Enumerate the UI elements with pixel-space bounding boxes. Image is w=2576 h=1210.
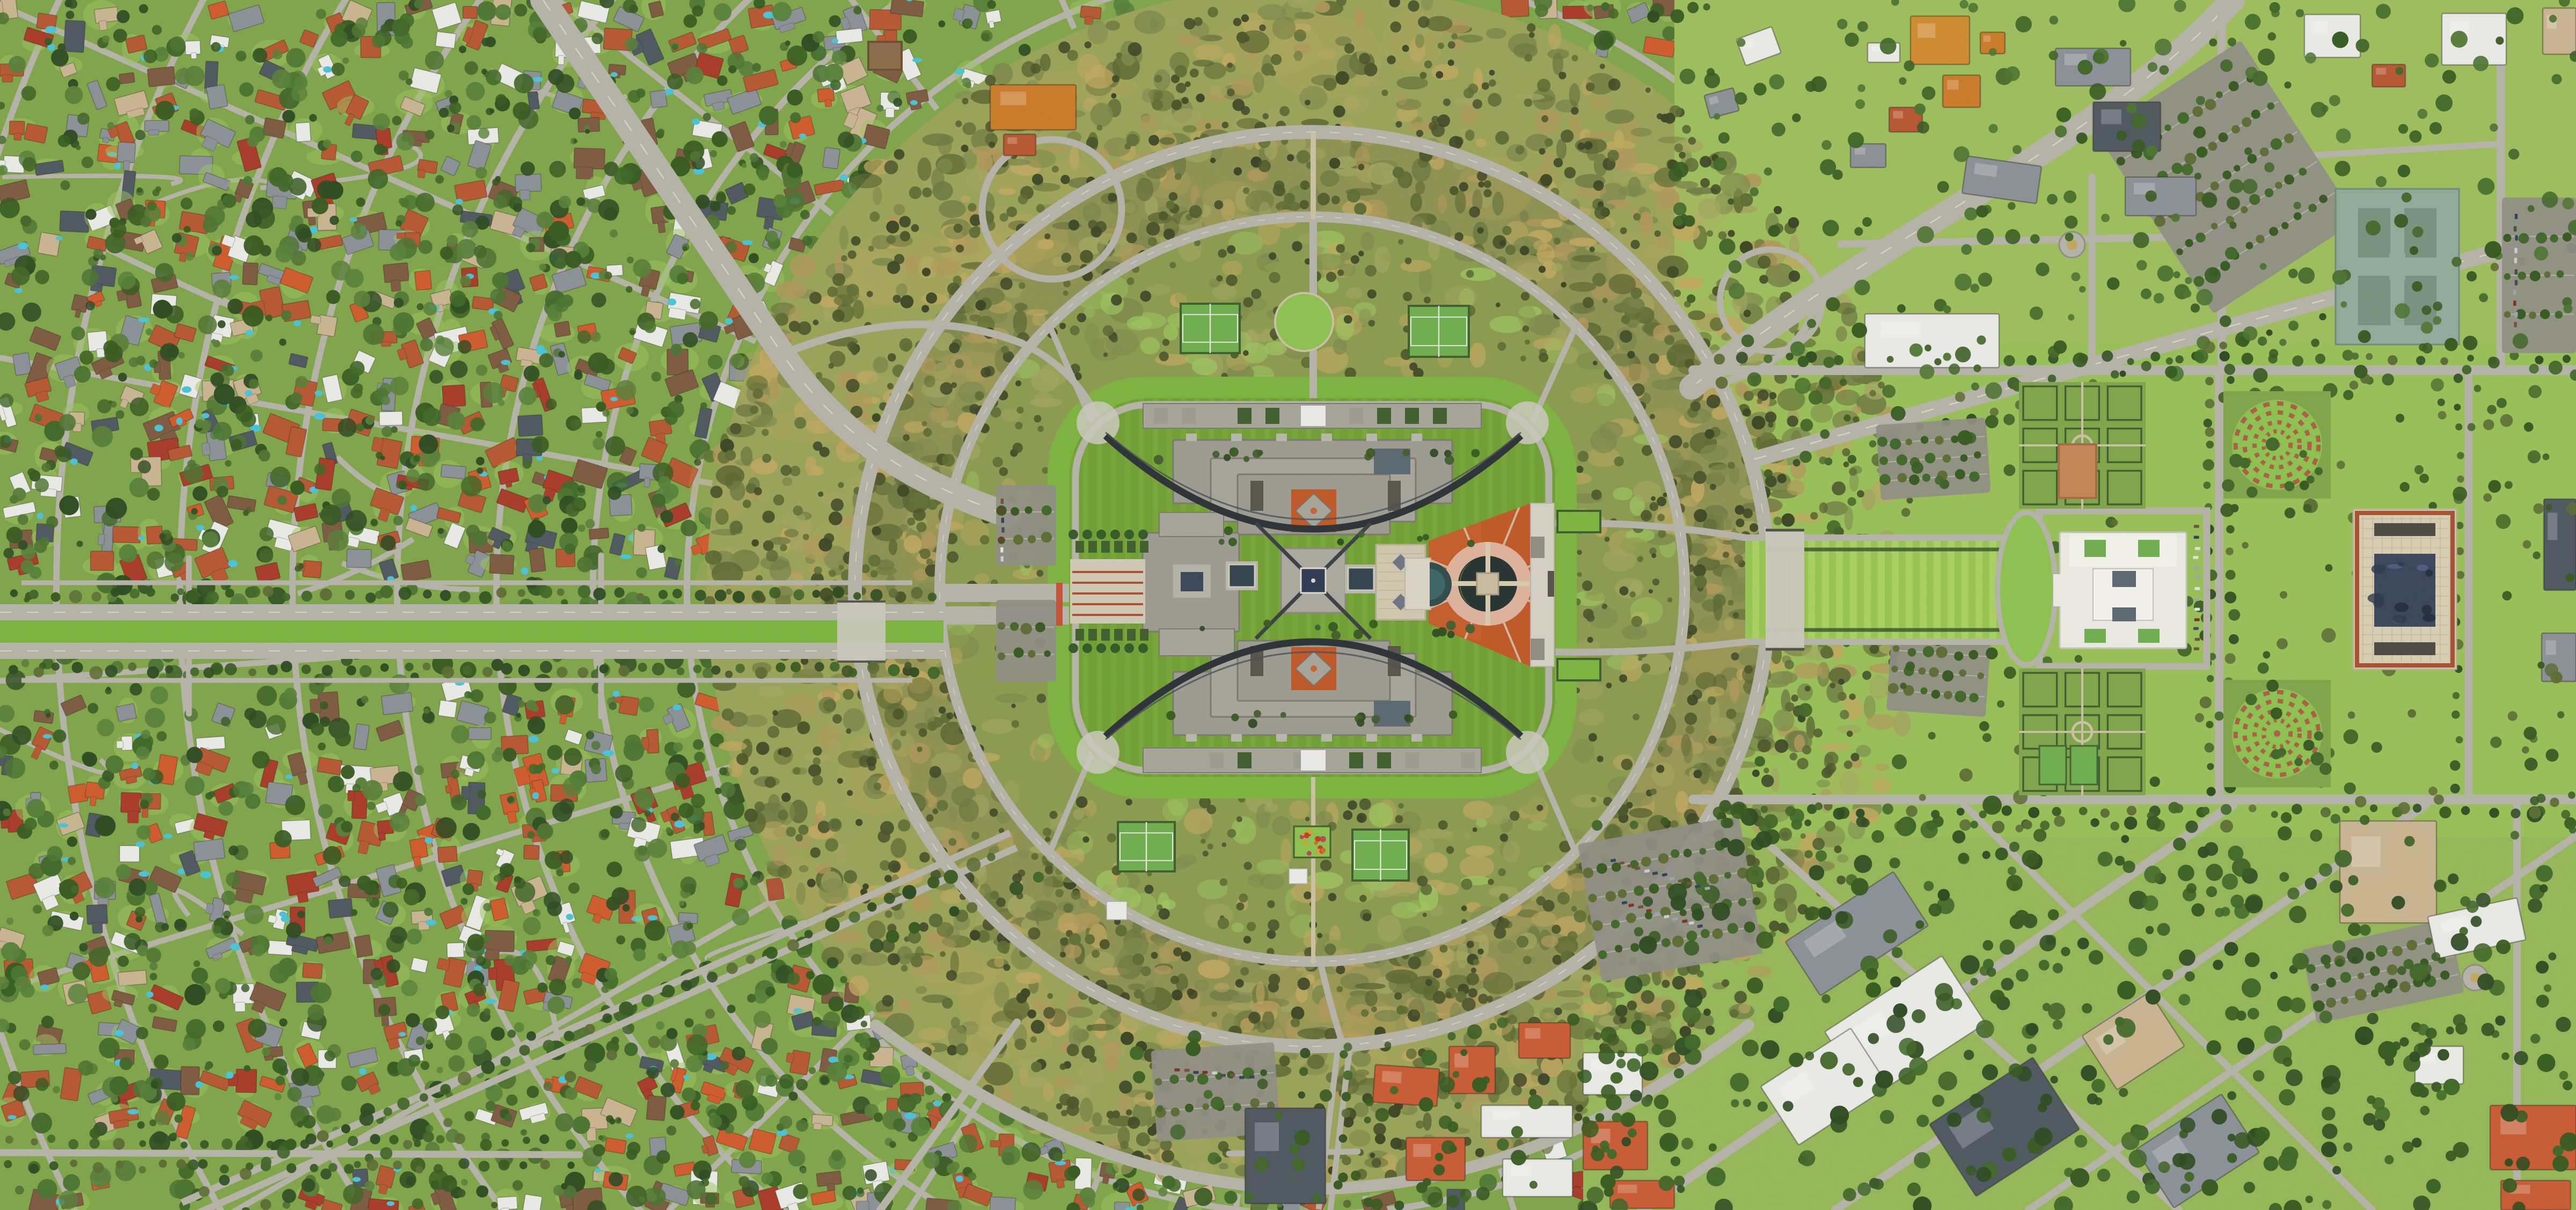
aerial-photo-svg [0, 0, 2576, 1210]
photo-grain-overlay [0, 0, 2576, 1210]
aerial-photo-canberra: Aerial satellite view of Parliament Hous… [0, 0, 2576, 1210]
